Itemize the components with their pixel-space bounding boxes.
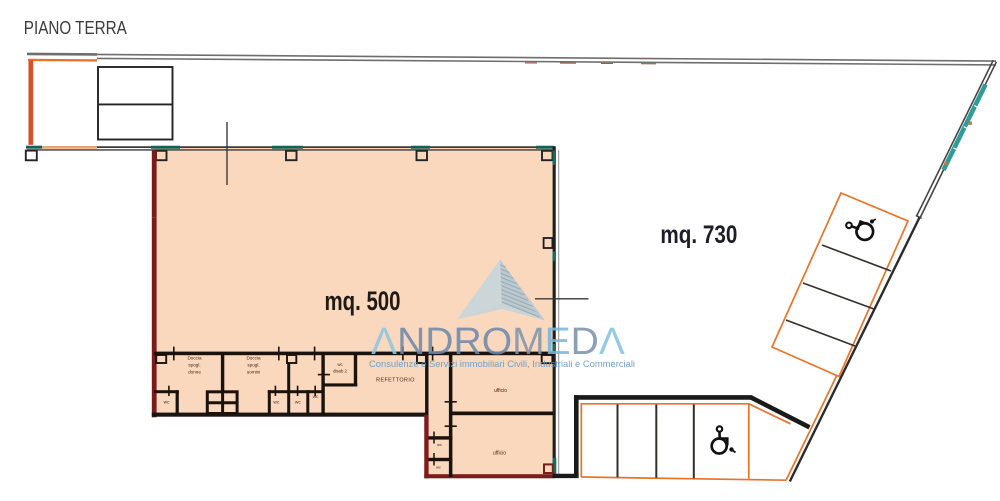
svg-text:ΛNDROMEDΛ: ΛNDROMEDΛ [371,321,626,363]
svg-text:REFETTORIO: REFETTORIO [376,378,415,384]
svg-text:wc: wc [164,401,170,406]
svg-text:wc: wc [295,401,301,406]
svg-text:Doccia: Doccia [187,356,201,361]
svg-text:Doccia: Doccia [246,356,260,361]
svg-text:disab 2: disab 2 [333,369,347,374]
svg-text:mq. 500: mq. 500 [325,286,401,316]
svg-text:wc: wc [337,362,343,367]
svg-text:spogl.: spogl. [247,363,259,368]
svg-text:PIANO TERRA: PIANO TERRA [24,18,127,38]
svg-text:wc: wc [437,442,442,447]
svg-text:ufficio: ufficio [493,451,506,457]
svg-text:wc: wc [436,465,441,470]
svg-text:mq. 730: mq. 730 [660,221,737,249]
svg-text:wc: wc [273,401,279,406]
svg-text:donne: donne [188,370,201,375]
svg-text:uomini: uomini [247,370,261,375]
svg-text:Consulenze e Servizi immobilia: Consulenze e Servizi immobiliari Civili,… [369,359,635,369]
svg-text:spogl.: spogl. [188,363,200,368]
svg-text:wc: wc [313,395,319,400]
svg-text:ufficio: ufficio [494,388,507,394]
